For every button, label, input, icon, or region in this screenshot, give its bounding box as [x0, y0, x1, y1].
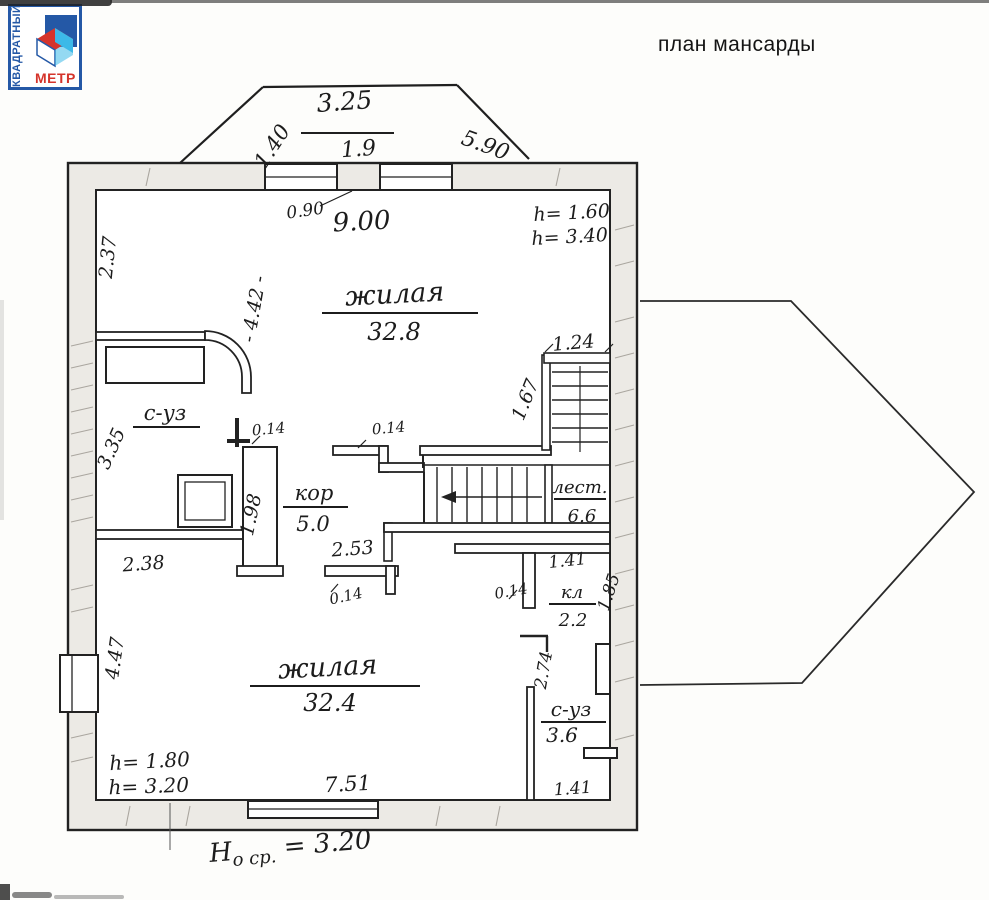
room-stairs-name: лест. — [553, 477, 608, 498]
dim-dormer-top: 3.25 — [316, 85, 374, 118]
dim-left-top: 2.37 — [95, 234, 122, 280]
dim-height-1: h= 1.60 — [533, 200, 611, 226]
dim-bath-bottom-width: 1.41 — [553, 778, 592, 801]
dim-dormer-inner: 1.9 — [340, 136, 377, 163]
dim-living-bottom-width: 7.51 — [324, 771, 372, 797]
room-closet-area: 2.2 — [558, 610, 588, 631]
dim-part-top-right: 0.14 — [371, 418, 406, 439]
room-closet-name: кл — [561, 582, 583, 603]
dim-part-top-left: 0.14 — [251, 419, 286, 440]
room-stairs-area: 6.6 — [568, 506, 597, 527]
dim-height-4: h= 3.20 — [108, 773, 190, 800]
room-living-top-name: жилая — [344, 276, 445, 312]
room-bath-top-name: с-уз — [144, 401, 187, 425]
dim-stair-top: 1.24 — [551, 330, 595, 356]
dim-height-2: h= 3.40 — [531, 224, 609, 250]
room-living-bottom-name: жилая — [277, 649, 378, 685]
room-bath-bottom-name: с-уз — [551, 697, 591, 721]
dim-bath-top-width: 2.38 — [121, 552, 166, 577]
room-living-top-area: 32.8 — [367, 318, 420, 346]
terrace-outline — [640, 301, 974, 685]
room-corridor-name: кор — [295, 481, 334, 505]
dim-dormer-right: 5.90 — [458, 126, 513, 166]
shower-fixture — [178, 475, 232, 527]
room-living-bottom-area: 32.4 — [303, 689, 356, 717]
dim-closet-top: 1.41 — [548, 549, 588, 573]
room-corridor-area: 5.0 — [296, 512, 329, 536]
bath-fixture-tall — [596, 644, 610, 694]
scanned-floor-plan-page: КВАДРАТНЫЙ МЕТР план мансарды — [0, 0, 989, 900]
footer-note: Hо ср. = 3.20 — [207, 825, 373, 873]
dim-top-width: 9.00 — [332, 206, 391, 239]
dim-corridor-width: 2.53 — [330, 537, 375, 562]
bath-fixture-small — [584, 748, 617, 758]
floor-plan: 3.25 1.40 1.9 5.90 0.90 9.00 h= 1.60 h= … — [0, 0, 989, 900]
dim-height-3: h= 1.80 — [109, 747, 191, 775]
room-bath-bottom-area: 3.6 — [546, 723, 578, 747]
